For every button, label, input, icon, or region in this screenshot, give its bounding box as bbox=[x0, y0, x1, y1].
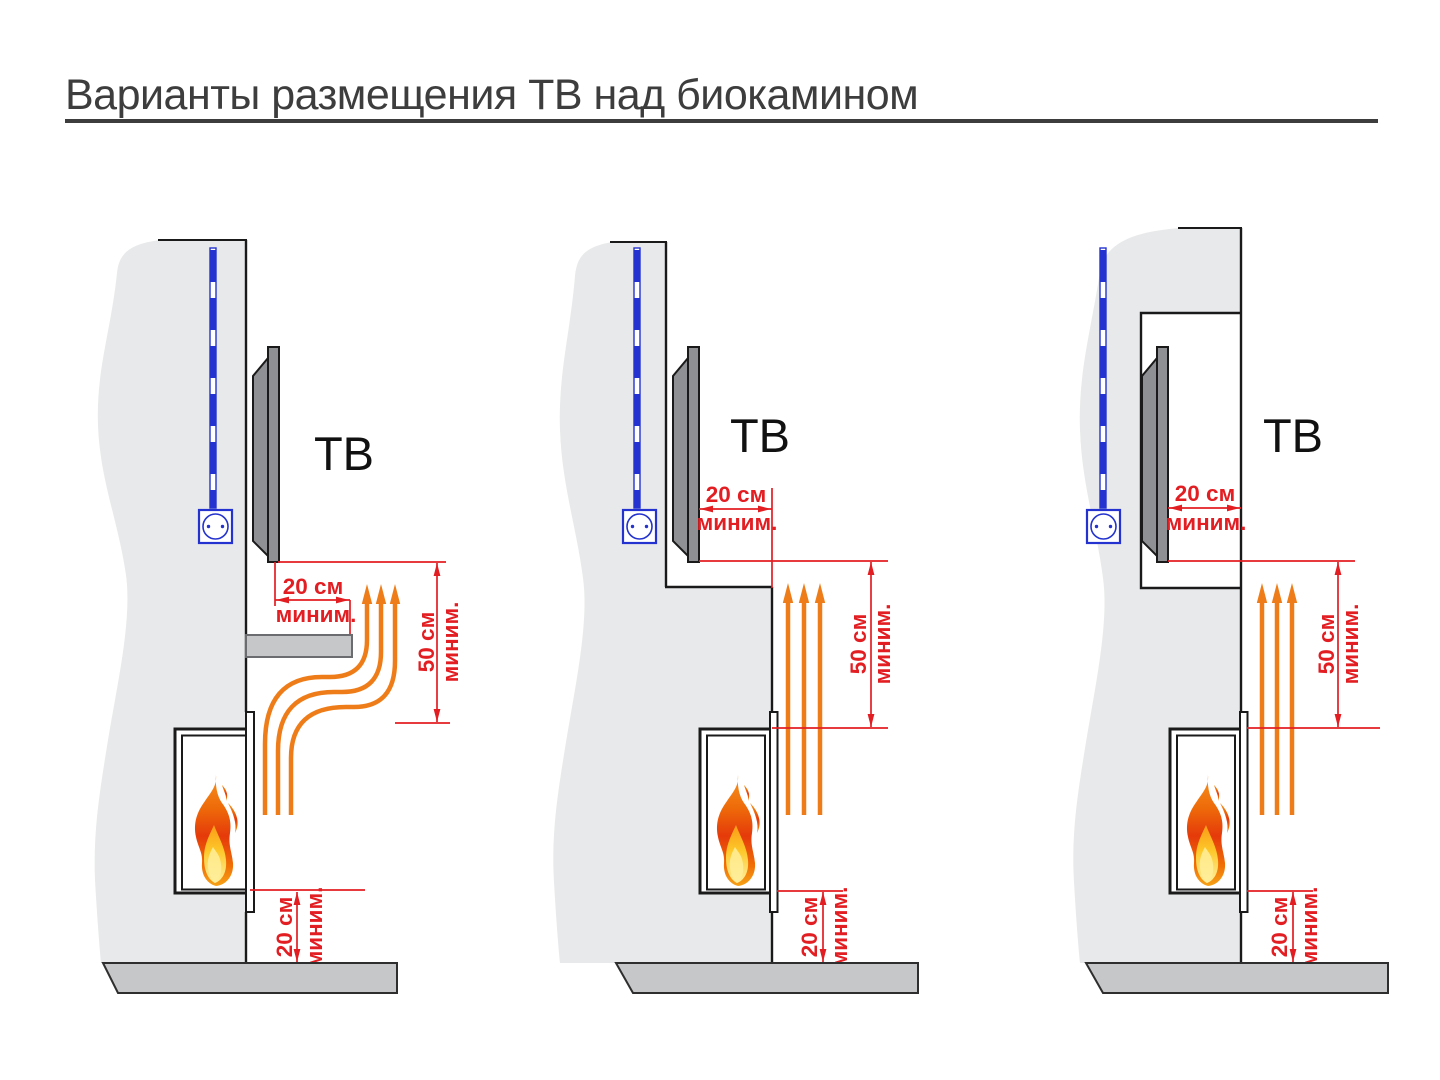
svg-text:20 см: 20 см bbox=[797, 897, 822, 957]
floor-slab bbox=[616, 963, 918, 993]
svg-text:миним.: миним. bbox=[697, 510, 778, 535]
protective-shelf bbox=[246, 635, 352, 657]
svg-text:миним.: миним. bbox=[1338, 604, 1363, 685]
floor-slab bbox=[103, 963, 397, 993]
diagram-variant-1-shelf: ТВ bbox=[95, 240, 463, 993]
tv-side-view bbox=[673, 347, 699, 562]
svg-text:20 см: 20 см bbox=[1175, 481, 1235, 506]
diagram-variant-2-step: ТВ 20 см миним. bbox=[553, 242, 918, 993]
svg-text:20 см: 20 см bbox=[706, 482, 766, 507]
svg-text:20 см: 20 см bbox=[283, 574, 343, 599]
power-outlet-icon bbox=[1087, 510, 1120, 543]
tv-label: ТВ bbox=[1263, 409, 1323, 462]
svg-text:миним.: миним. bbox=[1297, 887, 1322, 968]
svg-text:50 см: 50 см bbox=[846, 614, 871, 674]
tv-side-view bbox=[1142, 347, 1168, 562]
dimension-floor-20cm: 20 см миним. bbox=[777, 887, 852, 968]
dimension-tv-offset-20cm: 20 см миним. bbox=[1166, 481, 1247, 535]
tv-side-view bbox=[253, 347, 279, 562]
heat-flow-arrows bbox=[1257, 583, 1297, 815]
bio-fireplace bbox=[1170, 712, 1248, 912]
svg-text:20 см: 20 см bbox=[1267, 897, 1292, 957]
svg-text:миним.: миним. bbox=[870, 604, 895, 685]
floor-slab bbox=[1086, 963, 1388, 993]
bio-fireplace-tv-placement-page: Варианты размещения ТВ над биокамином bbox=[0, 0, 1440, 1080]
diagrams-canvas: ТВ bbox=[0, 0, 1440, 1080]
dimension-tv-offset-20cm: 20 см миним. bbox=[697, 482, 778, 588]
heat-flow-arrows bbox=[783, 583, 825, 815]
svg-text:50 см: 50 см bbox=[414, 612, 439, 672]
bio-fireplace bbox=[175, 712, 254, 912]
tv-label: ТВ bbox=[730, 409, 790, 462]
dimension-floor-20cm: 20 см миним. bbox=[250, 887, 365, 968]
power-outlet-icon bbox=[623, 510, 656, 543]
svg-text:миним.: миним. bbox=[827, 887, 852, 968]
svg-text:50 см: 50 см bbox=[1314, 614, 1339, 674]
dimension-floor-20cm: 20 см миним. bbox=[1247, 887, 1322, 968]
tv-label: ТВ bbox=[314, 427, 374, 480]
dimension-clearance-50cm: 50 см миним. bbox=[395, 563, 463, 723]
svg-text:миним.: миним. bbox=[302, 887, 327, 968]
svg-text:миним.: миним. bbox=[1166, 510, 1247, 535]
power-outlet-icon bbox=[199, 510, 232, 543]
svg-text:миним.: миним. bbox=[438, 602, 463, 683]
svg-text:20 см: 20 см bbox=[272, 897, 297, 957]
svg-text:миним.: миним. bbox=[276, 602, 357, 627]
diagram-variant-3-niche: ТВ 20 см миним. bbox=[1073, 228, 1388, 993]
bio-fireplace bbox=[700, 712, 778, 912]
